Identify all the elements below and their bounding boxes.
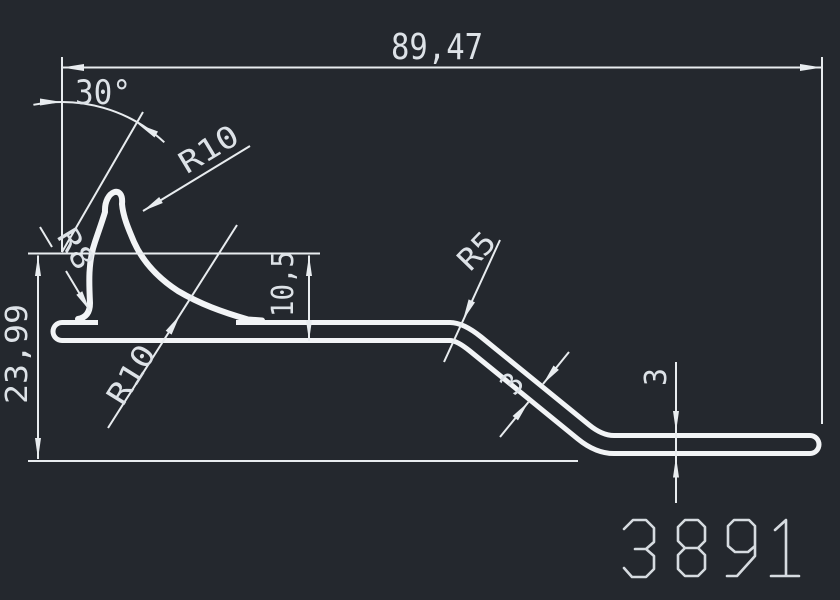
dim-overall-height-label: 23,99 bbox=[0, 304, 35, 404]
dim-flange-thickness-label: 3 bbox=[639, 368, 674, 386]
dim-hook-angle-label: 30° bbox=[75, 73, 131, 113]
dim-lip-height-label: 10,5 bbox=[266, 251, 301, 317]
dim-overall-width-label: 89,47 bbox=[391, 27, 483, 68]
drawing-canvas[interactable]: 89,47 30° R10 R8 R10 R5 10,5 bbox=[0, 0, 840, 600]
